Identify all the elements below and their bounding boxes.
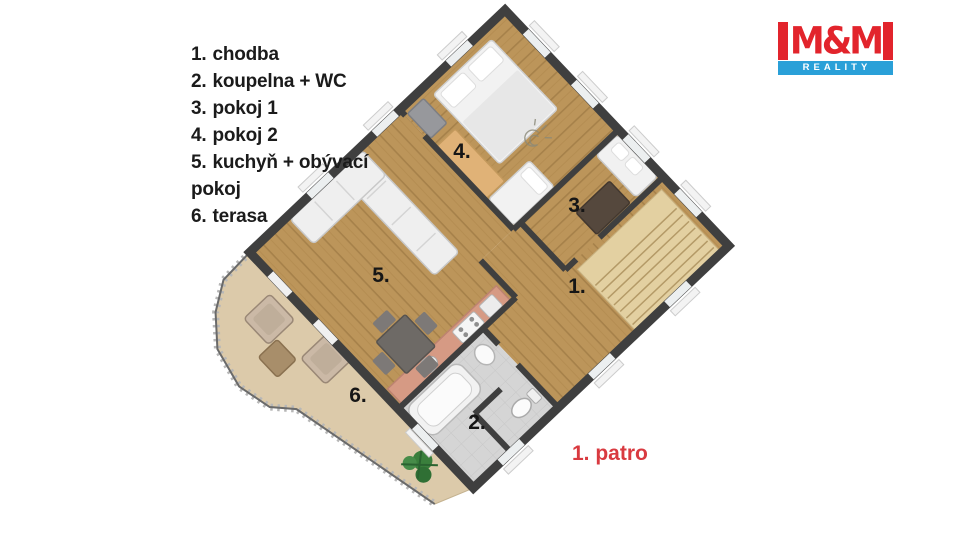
logo-title: M&M xyxy=(788,22,883,63)
floor-label: 1. patro xyxy=(572,442,648,466)
logo-right-bar xyxy=(883,22,893,60)
logo-left-bar xyxy=(778,22,788,60)
legend-item-6: 6.terasa xyxy=(191,203,381,230)
floor-plan xyxy=(0,0,960,540)
floor-plan-page: 1.chodba 2.koupelna + WC 3.pokoj 1 4.pok… xyxy=(0,0,960,540)
legend-item-4: 4.pokoj 2 xyxy=(191,122,381,149)
room-label-6: 6. xyxy=(349,384,367,408)
legend: 1.chodba 2.koupelna + WC 3.pokoj 1 4.pok… xyxy=(191,41,381,230)
legend-item-5: 5.kuchyň + obývací pokoj xyxy=(191,149,381,203)
room-label-3: 3. xyxy=(568,194,586,218)
legend-item-3: 3.pokoj 1 xyxy=(191,95,381,122)
logo-subtitle: REALITY xyxy=(778,61,893,75)
legend-item-1: 1.chodba xyxy=(191,41,381,68)
legend-item-2: 2.koupelna + WC xyxy=(191,68,381,95)
room-label-2: 2. xyxy=(468,411,486,435)
mm-reality-logo: M&M REALITY xyxy=(778,22,893,75)
room-label-4: 4. xyxy=(453,140,471,164)
room-label-1: 1. xyxy=(568,275,586,299)
room-label-5: 5. xyxy=(372,264,390,288)
logo-top: M&M xyxy=(778,22,893,60)
